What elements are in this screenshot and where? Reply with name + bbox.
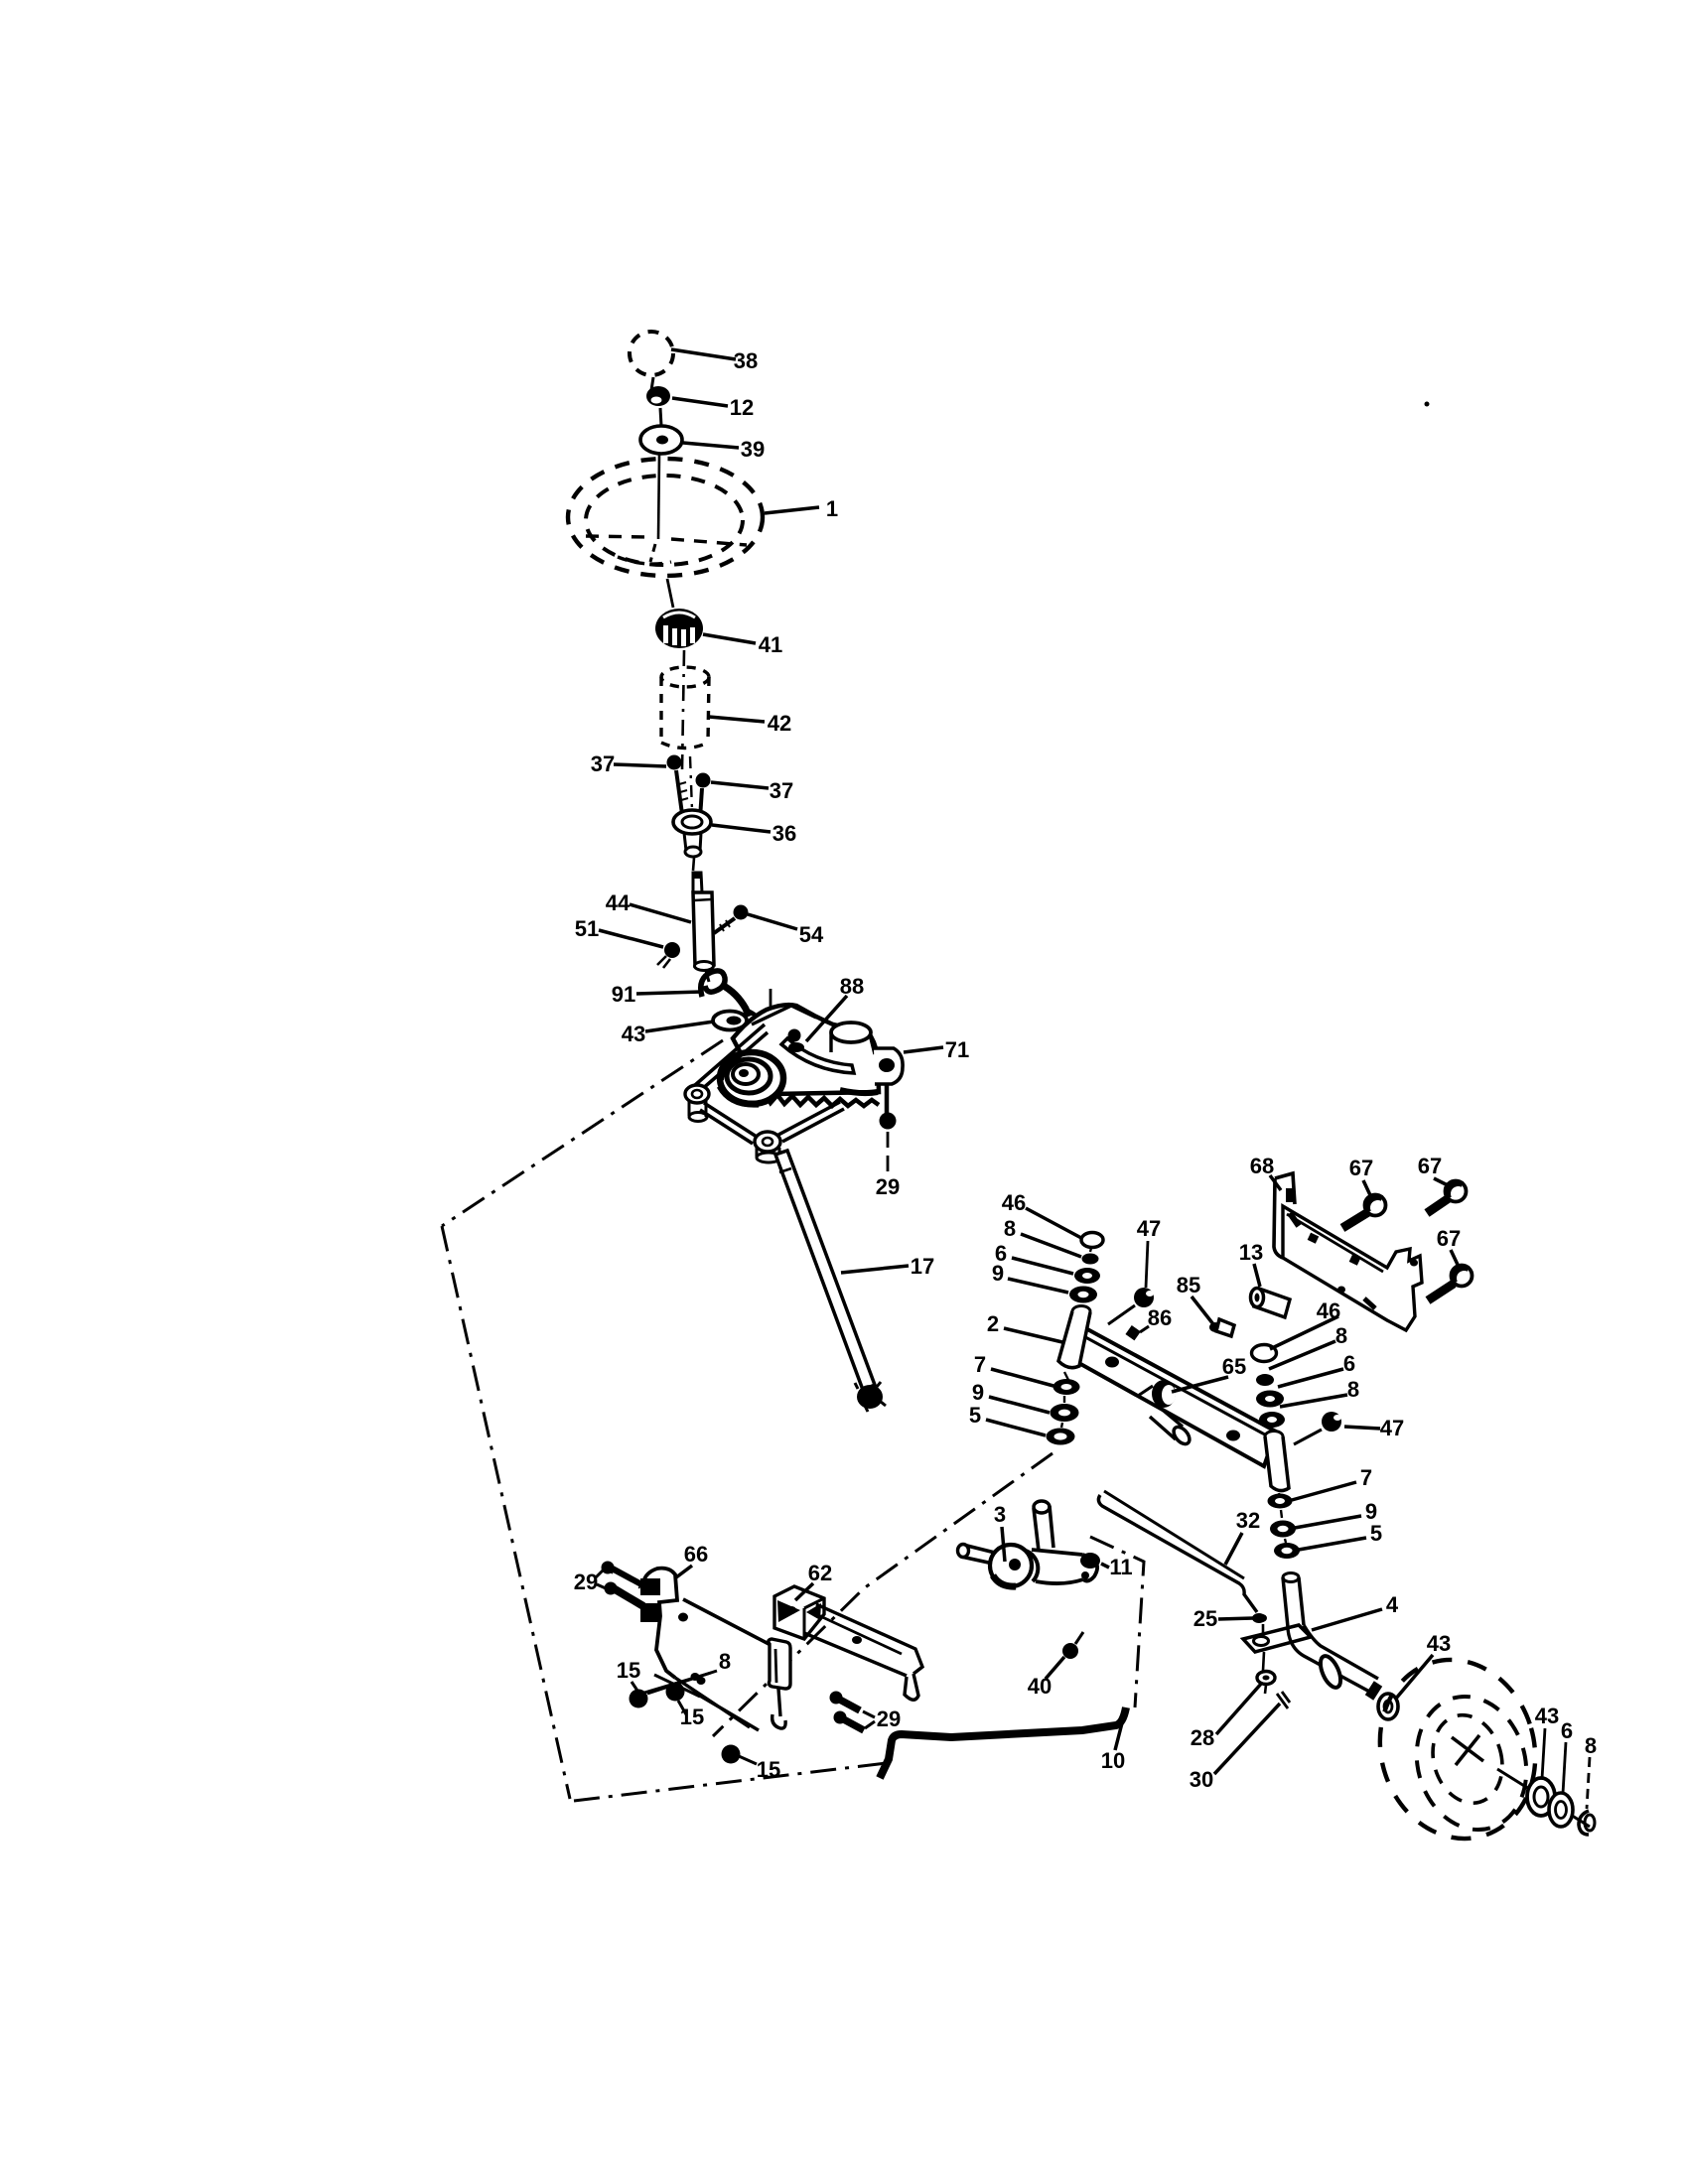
- svg-text:13: 13: [1239, 1240, 1263, 1265]
- svg-text:86: 86: [1148, 1305, 1172, 1330]
- svg-text:85: 85: [1177, 1273, 1200, 1297]
- svg-text:15: 15: [617, 1658, 640, 1683]
- svg-text:28: 28: [1191, 1725, 1214, 1750]
- svg-text:43: 43: [1535, 1704, 1559, 1728]
- svg-text:68: 68: [1250, 1154, 1274, 1178]
- svg-text:67: 67: [1418, 1154, 1442, 1178]
- svg-text:8: 8: [1004, 1216, 1016, 1241]
- svg-text:38: 38: [734, 348, 758, 373]
- svg-text:44: 44: [606, 890, 631, 915]
- svg-text:67: 67: [1349, 1156, 1373, 1180]
- svg-text:36: 36: [772, 821, 796, 846]
- svg-text:54: 54: [799, 922, 824, 947]
- svg-text:65: 65: [1222, 1354, 1246, 1379]
- svg-text:46: 46: [1002, 1190, 1026, 1215]
- svg-text:71: 71: [945, 1037, 969, 1062]
- svg-text:30: 30: [1190, 1767, 1213, 1792]
- svg-text:67: 67: [1437, 1226, 1461, 1251]
- svg-text:39: 39: [741, 437, 765, 462]
- svg-text:32: 32: [1236, 1508, 1260, 1533]
- svg-text:4: 4: [1386, 1592, 1399, 1617]
- svg-text:47: 47: [1380, 1416, 1404, 1440]
- svg-text:6: 6: [1561, 1718, 1573, 1743]
- svg-text:42: 42: [768, 711, 791, 736]
- svg-text:88: 88: [840, 974, 864, 999]
- svg-text:37: 37: [770, 778, 793, 803]
- svg-text:40: 40: [1028, 1674, 1052, 1699]
- svg-text:11: 11: [1109, 1555, 1132, 1579]
- svg-text:17: 17: [911, 1254, 934, 1279]
- svg-text:41: 41: [759, 632, 782, 657]
- svg-text:25: 25: [1193, 1606, 1217, 1631]
- svg-text:2: 2: [987, 1311, 999, 1336]
- svg-text:5: 5: [969, 1403, 981, 1428]
- svg-text:37: 37: [591, 751, 615, 776]
- svg-text:8: 8: [1335, 1323, 1347, 1348]
- svg-text:10: 10: [1101, 1748, 1125, 1773]
- svg-text:7: 7: [1360, 1465, 1372, 1490]
- svg-text:29: 29: [877, 1706, 901, 1731]
- svg-text:6: 6: [1343, 1351, 1355, 1376]
- svg-text:8: 8: [1585, 1733, 1597, 1758]
- svg-text:43: 43: [622, 1022, 645, 1046]
- svg-text:5: 5: [1370, 1521, 1382, 1546]
- svg-text:8: 8: [719, 1649, 731, 1674]
- svg-text:12: 12: [730, 395, 754, 420]
- svg-text:1: 1: [826, 496, 838, 521]
- svg-text:7: 7: [974, 1352, 986, 1377]
- svg-text:3: 3: [994, 1502, 1006, 1527]
- svg-text:51: 51: [575, 916, 599, 941]
- svg-text:9: 9: [992, 1261, 1004, 1286]
- svg-text:91: 91: [612, 982, 635, 1007]
- svg-text:29: 29: [574, 1570, 598, 1594]
- svg-text:8: 8: [1347, 1377, 1359, 1402]
- svg-text:66: 66: [684, 1542, 708, 1567]
- svg-text:43: 43: [1427, 1631, 1451, 1656]
- svg-text:29: 29: [876, 1174, 900, 1199]
- svg-text:62: 62: [808, 1561, 832, 1585]
- svg-text:9: 9: [972, 1380, 984, 1405]
- svg-text:47: 47: [1137, 1216, 1161, 1241]
- svg-text:15: 15: [757, 1757, 780, 1782]
